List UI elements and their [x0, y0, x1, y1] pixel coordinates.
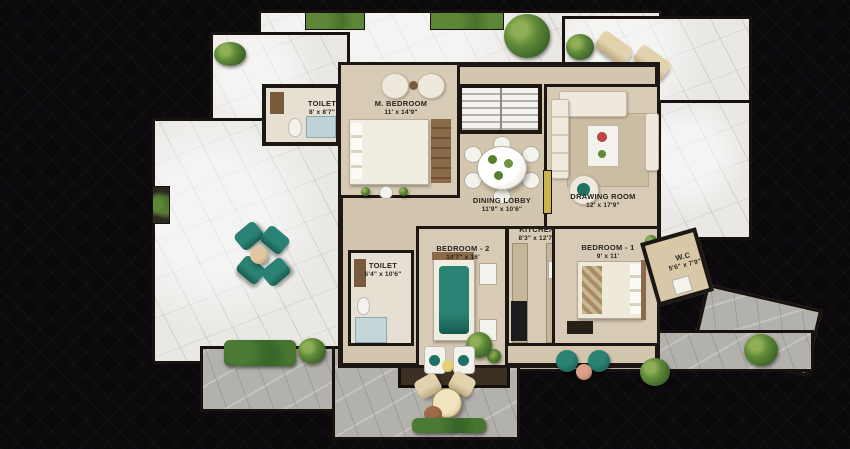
shower-tray	[306, 116, 336, 138]
shower-tray	[355, 317, 387, 343]
mini-table	[442, 360, 454, 372]
console	[645, 113, 659, 171]
stove	[511, 301, 527, 341]
label-kitchen: KITCHEN 8'3" x 12'7"	[519, 225, 556, 243]
room-dims: 11' x 14'9"	[375, 109, 428, 117]
room-dims: 11'9" x 10'6"	[473, 206, 531, 214]
rose-pot	[576, 364, 592, 380]
room-name: DINING LOBBY	[473, 196, 531, 205]
armchair	[417, 73, 445, 99]
wc-sink	[671, 275, 693, 295]
dining-table	[477, 146, 527, 190]
room-dims: 6'4" x 10'6"	[365, 271, 402, 279]
stool	[453, 346, 475, 374]
coffee-table	[587, 125, 619, 167]
side-table	[409, 81, 418, 90]
bed-runner	[402, 120, 426, 182]
sofa-top	[559, 91, 627, 117]
bench	[567, 321, 593, 334]
hedge	[412, 418, 486, 433]
terrace-table	[250, 246, 268, 264]
room-m-bedroom	[338, 62, 460, 198]
room-name: TOILET	[369, 261, 397, 270]
room-dims: 8' x 8'7"	[308, 109, 336, 117]
label-toilet-top: TOILET 8' x 8'7"	[308, 99, 336, 117]
cushion	[458, 355, 469, 366]
nightstand	[479, 263, 497, 285]
floor-plan: TOILET 8' x 8'7" M. BEDROOM 11' x 14'9" …	[0, 0, 850, 449]
room-name: BEDROOM - 2	[436, 244, 489, 253]
label-drawing-room: DRAWING ROOM 12' x 17'9"	[570, 192, 635, 210]
table-plant	[488, 155, 497, 164]
plant-pot	[361, 187, 370, 196]
label-bedroom1: BEDROOM - 1 9' x 11'	[581, 243, 634, 261]
cushion	[429, 355, 440, 366]
wardrobe	[431, 119, 451, 183]
room-drawing	[544, 84, 660, 234]
bush	[566, 34, 594, 60]
room-name: DRAWING ROOM	[570, 192, 635, 201]
staircase	[458, 84, 542, 134]
bush	[744, 334, 778, 366]
room-name: BEDROOM - 1	[581, 243, 634, 252]
pot-plant	[556, 350, 578, 372]
sofa-left	[551, 99, 569, 179]
pillows	[351, 123, 362, 179]
toilet-fixture	[357, 297, 370, 315]
label-bedroom2: BEDROOM - 2 10'7" x 16'	[436, 244, 489, 262]
bed	[349, 119, 429, 185]
room-name: TOILET	[308, 99, 336, 108]
pillows	[630, 264, 641, 314]
room-dims: 8'3" x 12'7"	[519, 235, 556, 243]
room-dims: 9' x 11'	[581, 253, 634, 261]
bed	[577, 261, 643, 319]
bush	[298, 338, 326, 364]
armchair	[381, 73, 409, 99]
hedge	[224, 340, 296, 366]
bed-runner	[582, 266, 602, 314]
stool	[379, 186, 393, 199]
bush	[214, 42, 246, 66]
vanity-counter	[270, 92, 284, 114]
room-dims: 10'7" x 16'	[436, 254, 489, 262]
planter-box	[430, 12, 504, 30]
table-plant	[598, 150, 606, 158]
plant-pot	[399, 187, 408, 196]
planter-box	[152, 186, 170, 224]
stair-divider	[500, 88, 502, 130]
table-plant	[494, 171, 503, 180]
duvet	[439, 266, 469, 334]
bed	[433, 257, 475, 341]
tree	[504, 14, 550, 58]
bush	[640, 358, 670, 386]
room-dims: 12' x 17'9"	[570, 202, 635, 210]
label-toilet2: TOILET 6'4" x 10'6"	[365, 261, 402, 279]
label-dining-lobby: DINING LOBBY 11'9" x 10'6"	[473, 196, 531, 214]
headboard	[641, 260, 646, 320]
flower-vase	[597, 132, 607, 142]
toilet-fixture	[288, 118, 302, 137]
label-m-bedroom: M. BEDROOM 11' x 14'9"	[375, 99, 428, 117]
table-plant	[504, 159, 513, 168]
room-name: KITCHEN	[519, 225, 554, 234]
terrace-right-strip	[658, 100, 752, 240]
planter-box	[305, 12, 365, 30]
wall-accent	[543, 170, 552, 214]
room-name: M. BEDROOM	[375, 99, 428, 108]
